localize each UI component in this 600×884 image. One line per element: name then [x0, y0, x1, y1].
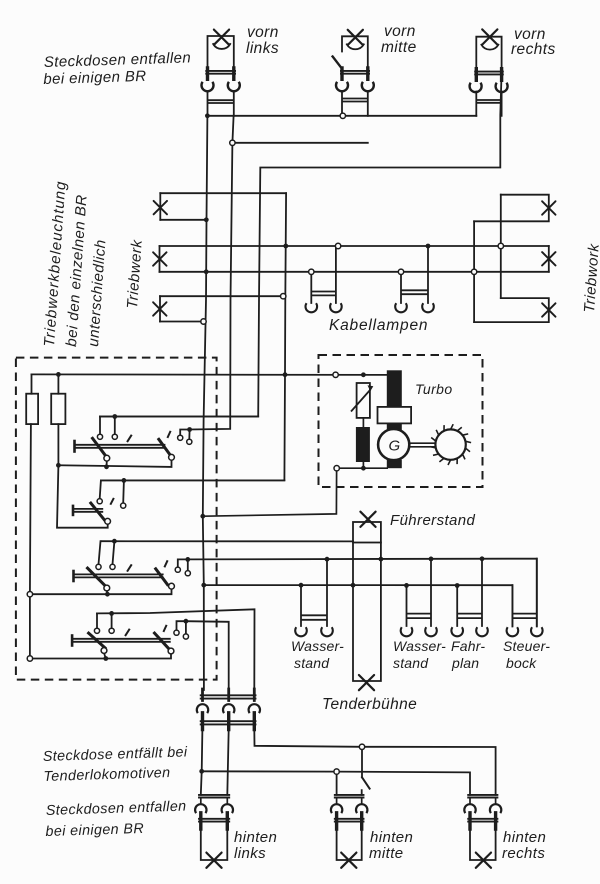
svg-text:mitte: mitte — [381, 39, 417, 56]
svg-text:bei einigen BR: bei einigen BR — [45, 821, 144, 840]
svg-text:Wasser-: Wasser- — [393, 638, 446, 654]
svg-text:links: links — [234, 845, 266, 862]
svg-text:Kabellampen: Kabellampen — [329, 317, 428, 334]
svg-text:unterschiedlich: unterschiedlich — [85, 239, 109, 347]
svg-text:Fahr-: Fahr- — [451, 638, 485, 654]
svg-text:Steuer-: Steuer- — [503, 638, 550, 654]
svg-text:plan: plan — [451, 655, 479, 671]
svg-text:vorn: vorn — [247, 24, 279, 41]
svg-text:mitte: mitte — [369, 845, 404, 862]
svg-text:Tenderbühne: Tenderbühne — [322, 696, 417, 713]
svg-text:Turbo: Turbo — [415, 381, 453, 397]
svg-text:bock: bock — [506, 655, 537, 671]
svg-text:vorn: vorn — [384, 23, 416, 40]
svg-text:stand: stand — [294, 655, 330, 671]
svg-text:Führerstand: Führerstand — [390, 512, 476, 529]
svg-text:hinten: hinten — [234, 829, 277, 846]
svg-text:rechts: rechts — [511, 41, 556, 58]
svg-text:Tenderlokomotiven: Tenderlokomotiven — [43, 765, 171, 785]
svg-text:rechts: rechts — [502, 845, 545, 862]
svg-text:hinten: hinten — [503, 829, 546, 846]
svg-text:links: links — [246, 40, 279, 57]
svg-text:Triebwerk: Triebwerk — [124, 238, 146, 309]
svg-text:Steckdose entfällt bei: Steckdose entfällt bei — [43, 744, 189, 765]
svg-text:G: G — [389, 438, 401, 455]
svg-text:Triebwork: Triebwork — [581, 242, 600, 313]
svg-text:Wasser-: Wasser- — [291, 638, 344, 654]
svg-text:stand: stand — [393, 655, 429, 671]
svg-text:bei einigen BR: bei einigen BR — [43, 68, 147, 88]
svg-text:hinten: hinten — [370, 829, 413, 846]
svg-text:Steckdosen entfallen: Steckdosen entfallen — [46, 799, 187, 819]
